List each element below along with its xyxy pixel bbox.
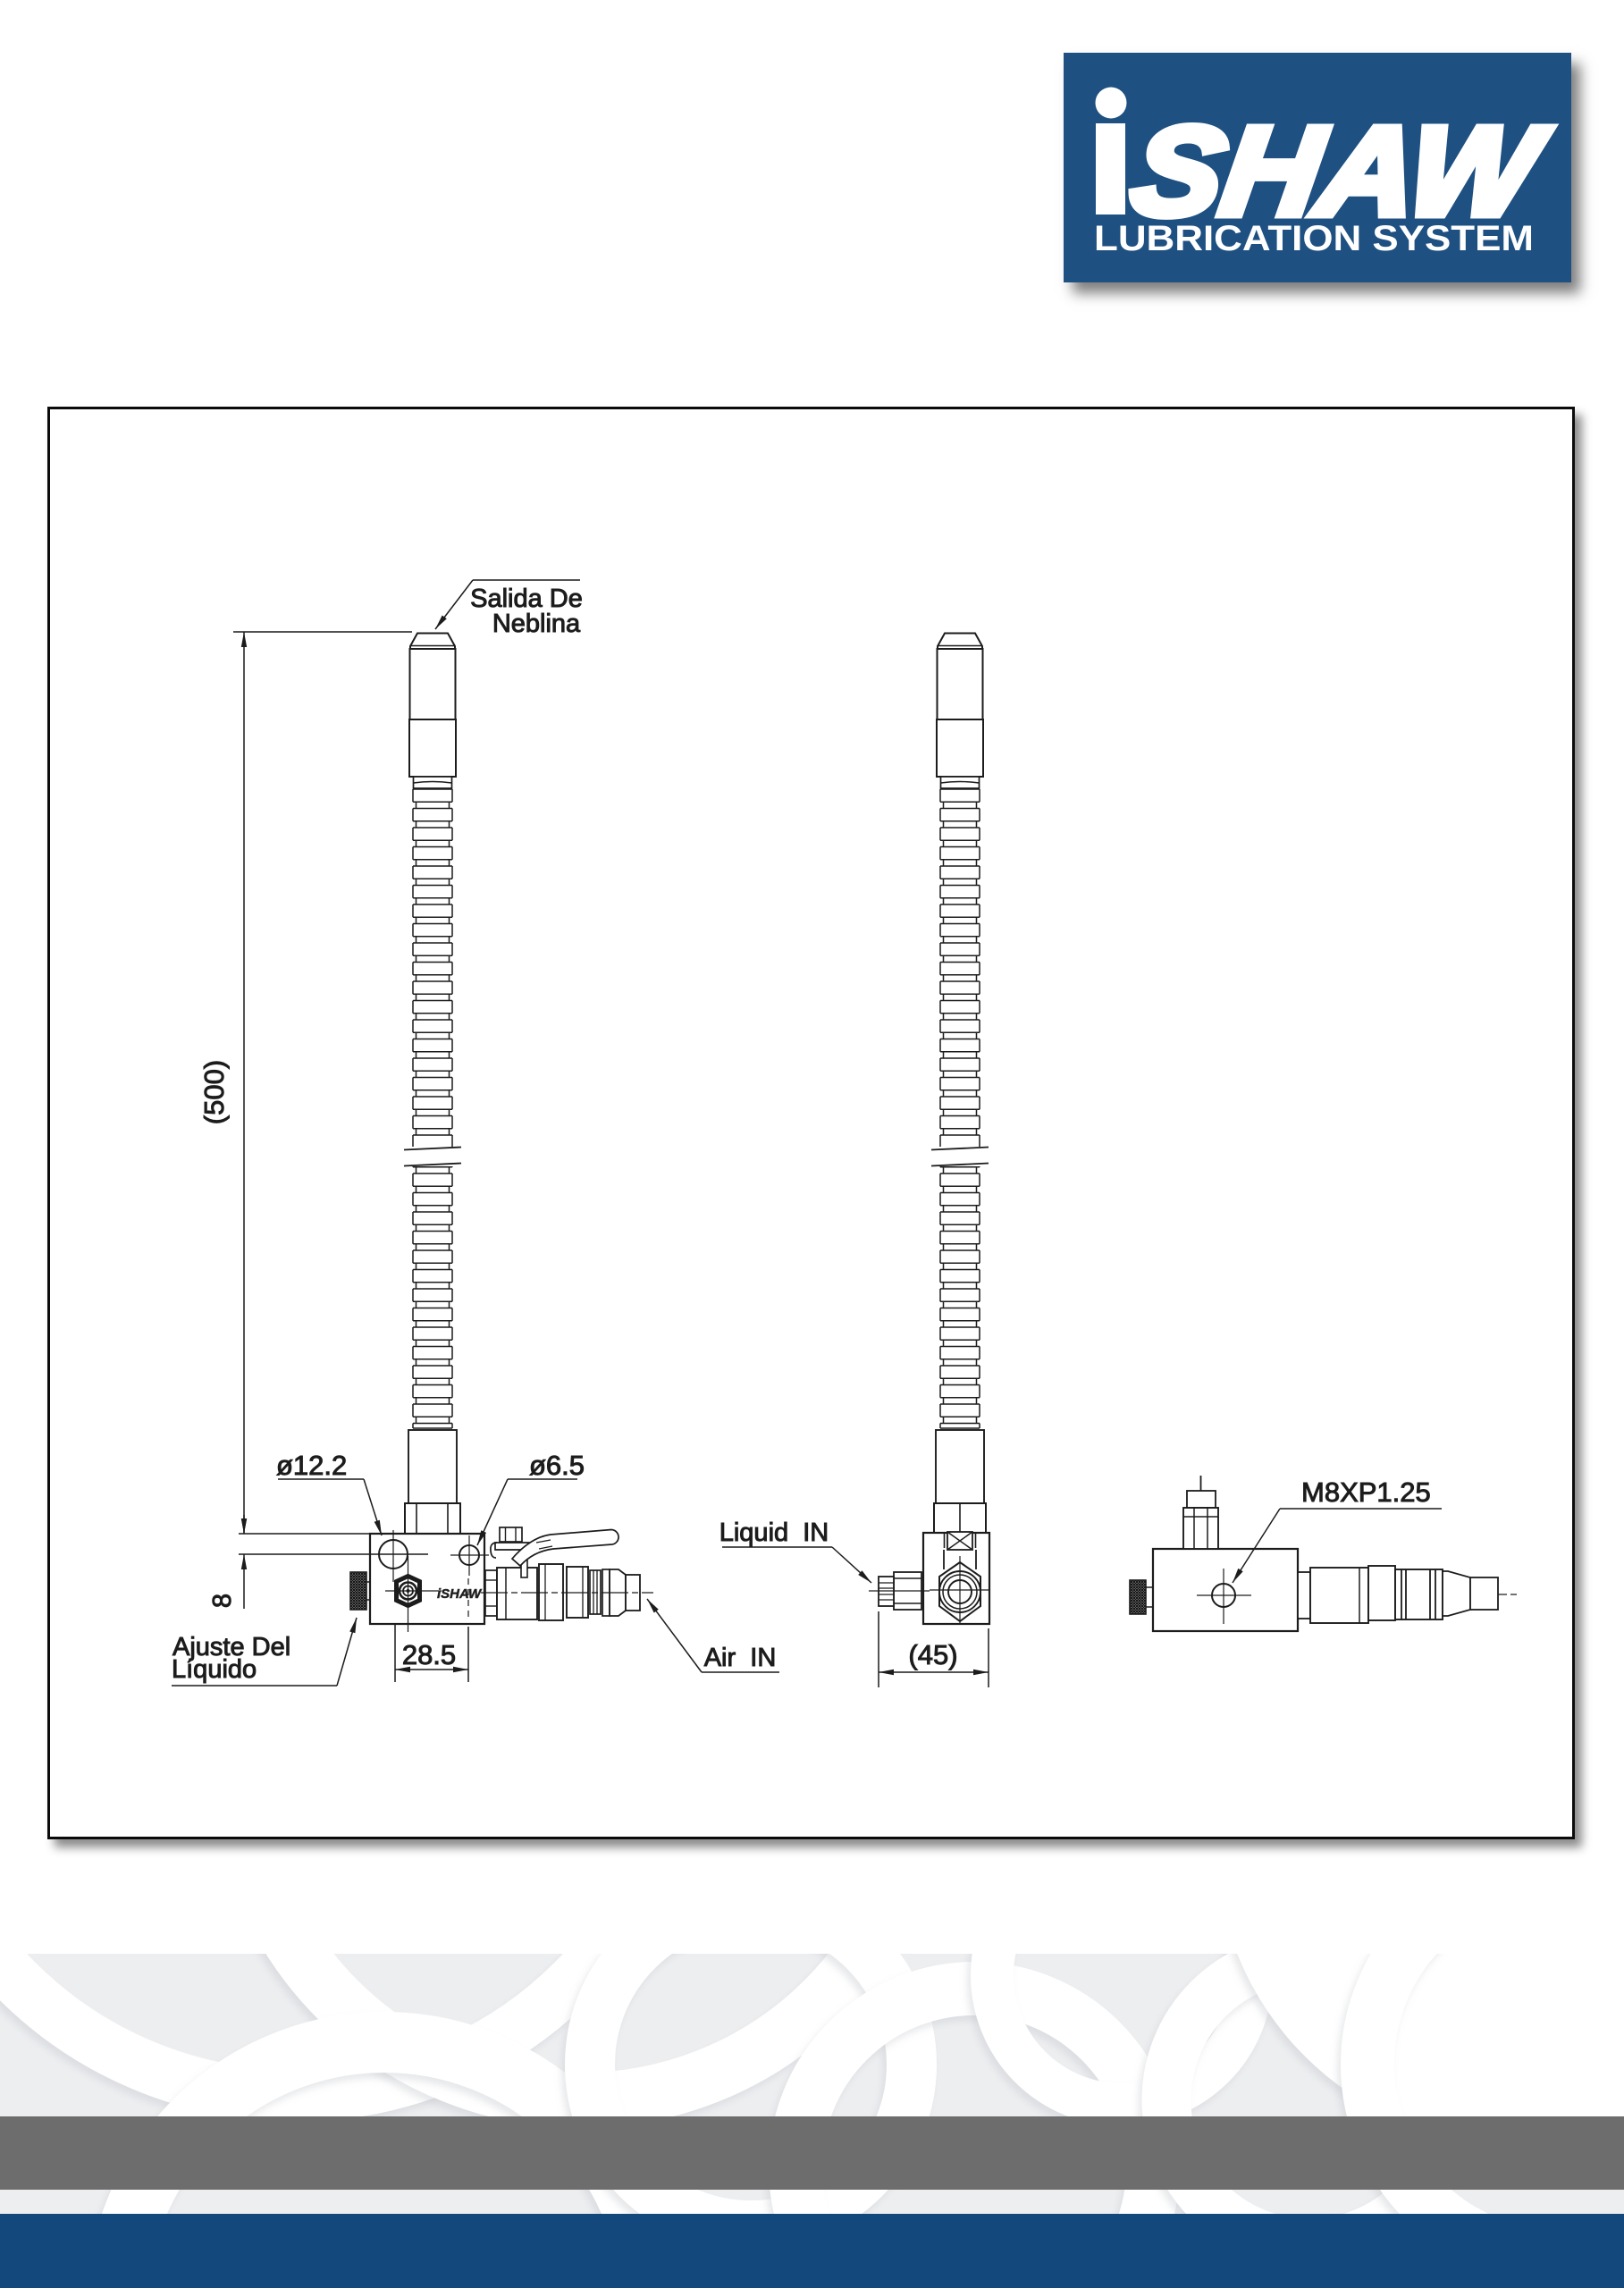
svg-text:ø12.2: ø12.2: [276, 1450, 347, 1481]
svg-text:ø6.5: ø6.5: [529, 1450, 585, 1481]
svg-text:28.5: 28.5: [402, 1639, 456, 1670]
svg-text:(45): (45): [908, 1639, 957, 1670]
svg-text:Líquido: Líquido: [172, 1655, 257, 1684]
svg-text:(500): (500): [198, 1060, 230, 1124]
svg-text:Liquid IN: Liquid IN: [719, 1518, 829, 1547]
svg-text:iSHAW: iSHAW: [437, 1586, 483, 1602]
svg-text:M8XP1.25: M8XP1.25: [1301, 1476, 1431, 1508]
svg-text:Neblina: Neblina: [492, 610, 581, 638]
svg-text:8: 8: [208, 1594, 237, 1608]
svg-text:Air IN: Air IN: [704, 1644, 777, 1672]
